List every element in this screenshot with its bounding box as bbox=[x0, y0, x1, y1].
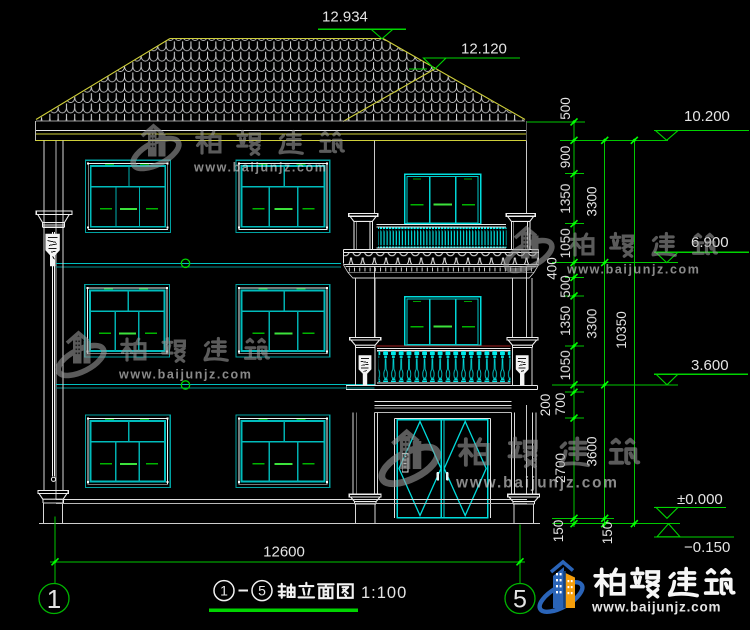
svg-text:200: 200 bbox=[538, 394, 553, 417]
svg-text:10.200: 10.200 bbox=[684, 108, 730, 125]
svg-text:900: 900 bbox=[558, 146, 573, 169]
svg-text:700: 700 bbox=[553, 393, 568, 416]
svg-text:1: 1 bbox=[220, 583, 228, 599]
svg-text:12600: 12600 bbox=[263, 544, 305, 561]
svg-text:150: 150 bbox=[551, 520, 566, 543]
svg-text:12.934: 12.934 bbox=[322, 9, 368, 26]
svg-text:10350: 10350 bbox=[614, 311, 629, 349]
svg-text:500: 500 bbox=[558, 275, 573, 298]
svg-text:1050: 1050 bbox=[558, 350, 573, 380]
svg-text:3300: 3300 bbox=[585, 309, 600, 339]
svg-text:1350: 1350 bbox=[558, 306, 573, 336]
svg-text:500: 500 bbox=[558, 97, 573, 120]
svg-text:3.600: 3.600 bbox=[691, 357, 729, 374]
svg-text:5: 5 bbox=[513, 586, 527, 614]
svg-text:1350: 1350 bbox=[558, 184, 573, 214]
svg-text:12.120: 12.120 bbox=[461, 41, 507, 58]
svg-text:150: 150 bbox=[600, 522, 615, 545]
svg-text:−0.150: −0.150 bbox=[684, 539, 730, 556]
svg-text:1: 1 bbox=[47, 584, 61, 614]
svg-text:www.baijunjz.com: www.baijunjz.com bbox=[591, 600, 721, 615]
svg-text:1050: 1050 bbox=[558, 228, 573, 258]
svg-text:5: 5 bbox=[258, 583, 266, 599]
svg-text:3600: 3600 bbox=[585, 436, 600, 466]
svg-text:±0.000: ±0.000 bbox=[677, 491, 723, 508]
svg-text:3300: 3300 bbox=[585, 186, 600, 216]
svg-text:1:100: 1:100 bbox=[361, 584, 407, 602]
